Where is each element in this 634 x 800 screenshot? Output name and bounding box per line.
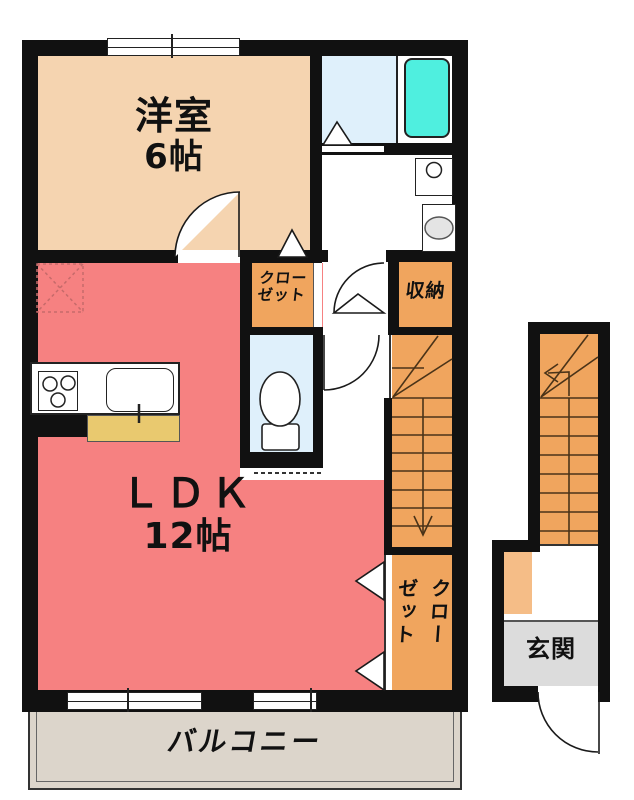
window-bottom-left [67, 692, 202, 710]
storage-label: 収納 [398, 281, 453, 302]
room-bathroom [322, 56, 396, 143]
closet-lower-label: ゼット クロー [395, 578, 450, 647]
kitchen-wall-stub [30, 415, 87, 437]
washbasin-icon [415, 158, 453, 196]
wall-western-bottom-right [240, 250, 312, 263]
wall-toilet-left [240, 335, 250, 452]
entrance-step [504, 552, 532, 614]
washing-machine-icon [422, 204, 456, 252]
wall-toilet-bottom [240, 452, 323, 468]
ldk-name: ＬＤＫ [38, 472, 338, 517]
washroom-door-opening [328, 250, 386, 262]
door-arc-entrance [538, 692, 599, 754]
closet-lower-col-right: クロー [422, 578, 456, 647]
bathtub-icon [404, 58, 450, 138]
western-room-name: 洋室 [38, 95, 310, 138]
entrance-label: 玄関 [504, 636, 598, 663]
wall-toilet-right [313, 335, 323, 452]
wall-closet-upper-bottom [240, 327, 323, 335]
wall-stairs-bottom [384, 547, 468, 555]
western-room-size: 6帖 [38, 138, 310, 176]
hallway [323, 262, 388, 480]
kitchen-sink-icon [106, 368, 174, 412]
closet-upper-line2: ゼット [250, 287, 313, 304]
balcony-label: バルコニー [25, 726, 465, 757]
staircase-entrance [540, 334, 598, 546]
wall-rb-left-lower [492, 540, 504, 702]
closet-lower-col-left: ゼット [389, 578, 423, 647]
wall-rb-right [598, 322, 610, 702]
gas-stove-icon [38, 371, 78, 411]
wall-storage-left [388, 250, 399, 335]
kitchen-counter-icon [87, 415, 180, 442]
western-room-label: 洋室 6帖 [38, 95, 310, 176]
window-top [107, 38, 240, 56]
room-toilet [250, 335, 313, 452]
wall-right [452, 40, 468, 712]
bath-door-track [322, 146, 384, 152]
wall-western-bottom-left [22, 250, 178, 263]
wall-stairs-left [384, 398, 392, 555]
wall-rb-left-upper [528, 322, 540, 548]
wall-top-right [240, 40, 468, 56]
stairs-entry-line [389, 335, 391, 398]
floorplan: 洋室 6帖 ＬＤＫ 12帖 クロー ゼット 収納 ゼット クロー 玄関 バルコニ… [0, 0, 634, 800]
ldk-label: ＬＤＫ 12帖 [38, 472, 338, 557]
wall-storage-bottom [388, 327, 468, 335]
closet-upper-label: クロー ゼット [250, 270, 315, 304]
staircase-main [392, 335, 452, 547]
wall-rb-bottom [492, 686, 538, 702]
closet-upper-line1: クロー [252, 270, 315, 287]
bathroom-divider-line [396, 56, 398, 143]
ldk-size: 12帖 [38, 517, 338, 557]
window-bottom-right [253, 692, 317, 710]
